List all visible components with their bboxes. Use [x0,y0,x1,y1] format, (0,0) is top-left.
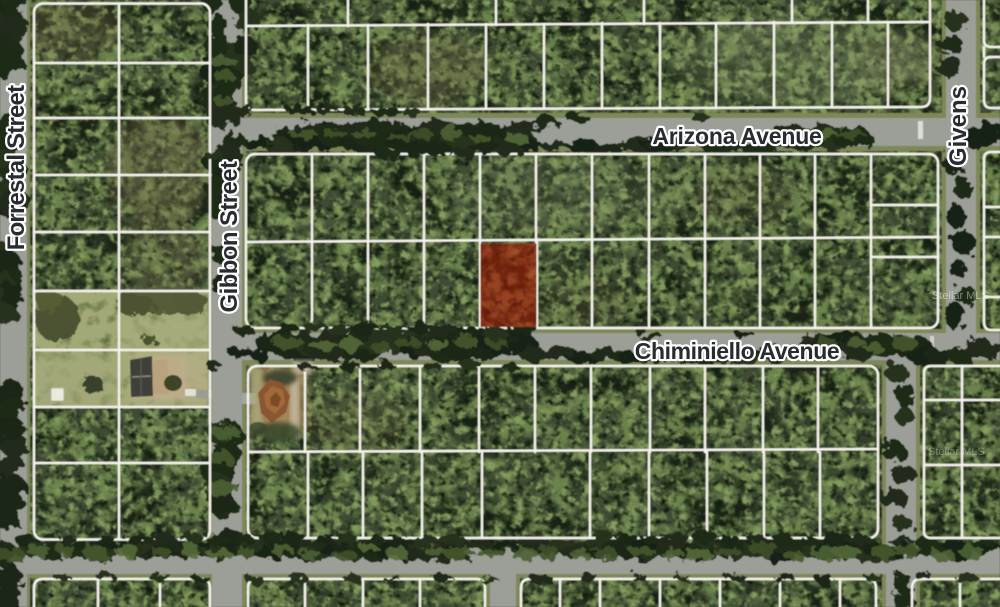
svg-text:Arizona Avenue: Arizona Avenue [652,123,821,149]
svg-text:Forrestal Street: Forrestal Street [3,85,30,250]
svg-text:Gibbon Street: Gibbon Street [216,161,243,312]
svg-text:Givens: Givens [945,86,972,166]
svg-text:Stellar MLS: Stellar MLS [932,290,989,302]
svg-text:Chiminiello Avenue: Chiminiello Avenue [635,338,840,364]
svg-text:Stellar MLS: Stellar MLS [928,446,985,458]
